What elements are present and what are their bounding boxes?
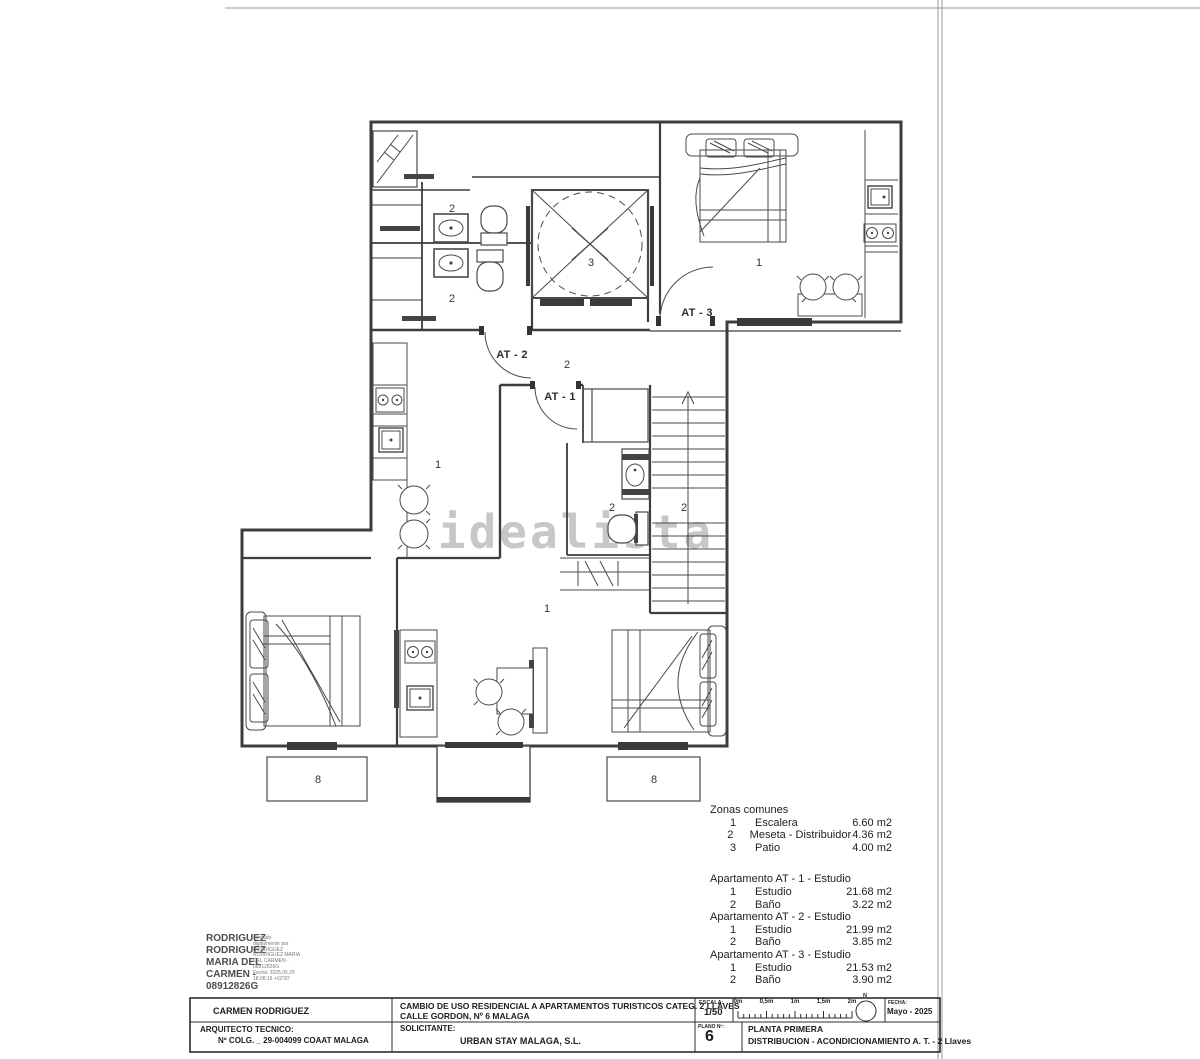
ruler-tick-label: 0m <box>734 999 743 1005</box>
room-number: 3 <box>588 257 594 269</box>
ruler-tick-label: 1m <box>791 999 800 1005</box>
staircase <box>652 392 725 604</box>
schedule-title: Apartamento AT - 1 - Estudio <box>710 873 892 886</box>
room-number: 1 <box>544 603 550 615</box>
project-title: CAMBIO DE USO RESIDENCIAL A APARTAMENTOS… <box>400 1001 740 1011</box>
apartment-label: AT - 2 <box>496 349 528 361</box>
desk <box>474 648 547 735</box>
sheet-title: PLANTA PRIMERA <box>748 1024 823 1034</box>
north-circle <box>856 1001 876 1021</box>
room-number: 2 <box>449 203 455 215</box>
patio-vents <box>526 206 654 306</box>
room-number: 1 <box>756 257 762 269</box>
patio <box>526 190 654 306</box>
toilet-icon <box>477 206 507 291</box>
schedule-title: Apartamento AT - 3 - Estudio <box>710 949 892 962</box>
area-schedule-block: Apartamento AT - 3 - Estudio1Estudio21.5… <box>710 949 892 987</box>
watermark-text: idealista <box>438 505 714 559</box>
bed-bottom-left <box>246 612 360 730</box>
sheet-subtitle: DISTRIBUCION - ACONDICIONAMIENTO A. T. -… <box>748 1036 971 1046</box>
scale-label: ESCALA: <box>699 1000 723 1006</box>
window-band <box>287 742 337 750</box>
schedule-row: 2Baño3.22 m2 <box>710 899 892 912</box>
schedule-row: 2Meseta - Distribuidor4.36 m2 <box>710 829 892 842</box>
schedule-row: 1Estudio21.68 m2 <box>710 886 892 899</box>
at1-door <box>530 381 581 429</box>
apartment-label: AT - 1 <box>544 391 576 403</box>
architect-label: ARQUITECTO TECNICO: <box>200 1025 294 1034</box>
at3-door <box>656 267 812 329</box>
apartment-label: AT - 3 <box>681 307 713 319</box>
bed-bottom-right <box>612 626 726 736</box>
scale-ruler <box>738 1011 852 1018</box>
area-schedule: Zonas comunes1Escalera6.60 m22Meseta - D… <box>710 804 892 987</box>
plan-sheet: idealista <box>0 0 1200 1059</box>
scale-value: 1/50 <box>704 1007 723 1018</box>
ruler-tick-label: 2m <box>848 999 857 1005</box>
schedule-row: 1Estudio21.53 m2 <box>710 962 892 975</box>
wardrobe <box>583 389 648 442</box>
project-address: CALLE GORDON, Nº 6 MALAGA <box>400 1011 530 1021</box>
room-number: 2 <box>449 293 455 305</box>
window-band <box>618 742 688 750</box>
chairs-left <box>398 485 430 549</box>
schedule-row: 2Baño3.85 m2 <box>710 936 892 949</box>
area-schedule-block: Apartamento AT - 1 - Estudio1Estudio21.6… <box>710 873 892 911</box>
ruler-labels: 0m0,5m1m1,5m2m <box>738 999 854 1007</box>
author-name: CARMEN RODRIGUEZ <box>213 1006 309 1016</box>
kitchen-top-right <box>864 130 898 318</box>
schedule-title: Apartamento AT - 2 - Estudio <box>710 911 892 924</box>
schedule-row: 1Estudio21.99 m2 <box>710 924 892 937</box>
bed-top-right <box>686 134 798 242</box>
shaft-hatch <box>560 558 650 590</box>
room-number: 8 <box>651 774 657 786</box>
applicant-value: URBAN STAY MALAGA, S.L. <box>460 1036 581 1046</box>
terrace <box>437 746 530 802</box>
room-number: 8 <box>315 774 321 786</box>
walls <box>242 122 901 746</box>
schedule-row: 3Patio4.00 m2 <box>710 842 892 855</box>
floor-plan-drawing: idealista <box>0 0 1200 1059</box>
north-label: N <box>863 993 867 999</box>
schedule-row: 1Escalera6.60 m2 <box>710 817 892 830</box>
stair-symbol <box>373 131 434 187</box>
window-band <box>737 318 812 326</box>
kitchen-center <box>394 630 437 737</box>
sheet-number: 6 <box>705 1028 714 1046</box>
kitchen-left <box>373 343 407 558</box>
schedule-title: Zonas comunes <box>710 804 892 817</box>
ruler-tick-label: 0,5m <box>760 999 774 1005</box>
room-number: 2 <box>564 359 570 371</box>
signature-stamp: Firmadodigitalmente porRODRIGUEZRODRIGUE… <box>253 936 315 982</box>
area-schedule-block: Zonas comunes1Escalera6.60 m22Meseta - D… <box>710 804 892 854</box>
schedule-row: 2Baño3.90 m2 <box>710 974 892 987</box>
architect-value: Nº COLG. _ 29-004099 COAAT MALAGA <box>218 1036 369 1045</box>
area-schedule-block: Apartamento AT - 2 - Estudio1Estudio21.9… <box>710 911 892 949</box>
date-label: FECHA: <box>888 1000 907 1006</box>
room-number: 2 <box>609 502 615 514</box>
room-number: 2 <box>681 502 687 514</box>
balconies <box>267 742 700 802</box>
toilet-icon-at1 <box>608 512 648 545</box>
date-value: Mayo - 2025 <box>887 1007 932 1016</box>
ruler-tick-label: 1,5m <box>817 999 831 1005</box>
applicant-label: SOLICITANTE: <box>400 1024 455 1033</box>
bathtub-icon <box>622 449 649 499</box>
chairs-top-right <box>797 274 862 316</box>
room-number: 1 <box>435 459 441 471</box>
